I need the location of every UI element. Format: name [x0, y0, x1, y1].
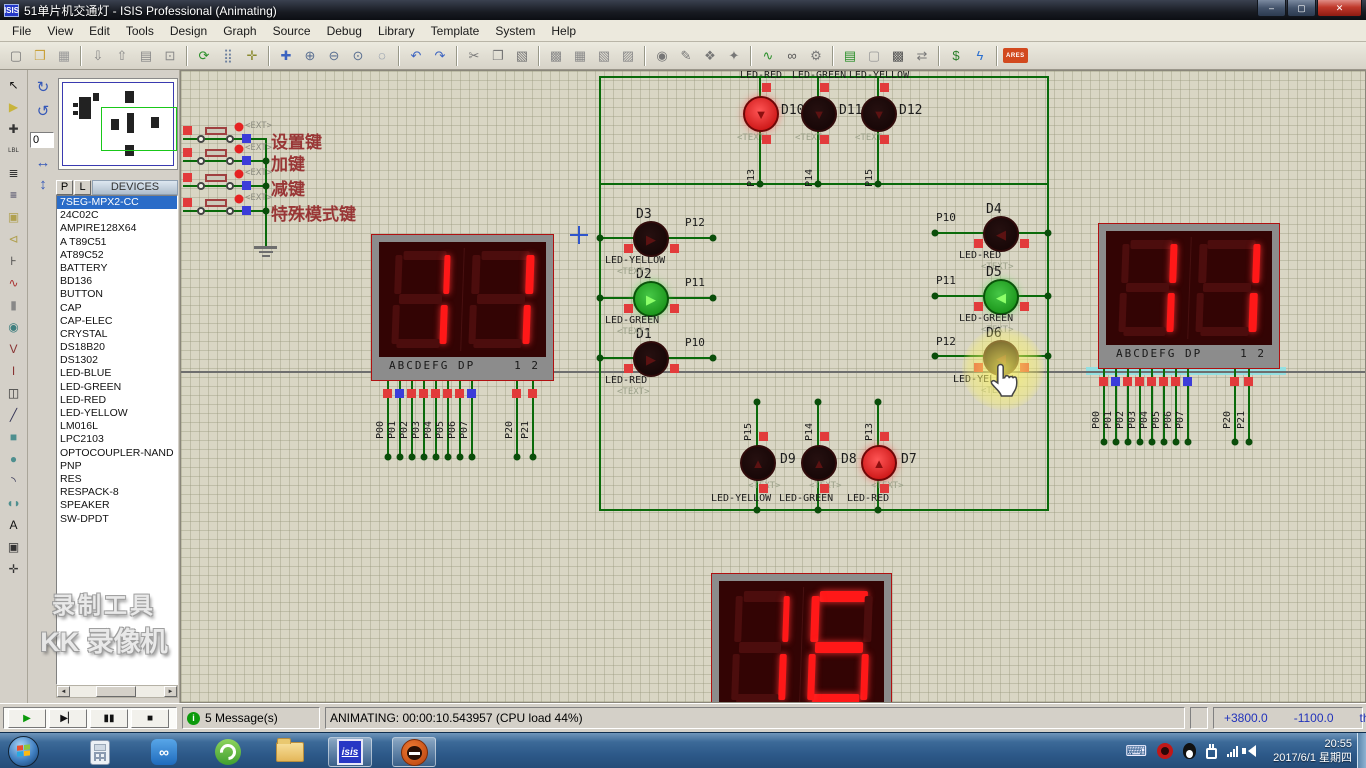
led-D7[interactable]: ▲	[861, 445, 897, 481]
import-icon[interactable]: ⇩	[87, 45, 109, 66]
app-icon: ISIS	[4, 4, 19, 17]
minimize-button[interactable]: –	[1257, 0, 1286, 17]
property-assign-icon[interactable]: ⚙	[805, 45, 827, 66]
2d-marker-icon[interactable]: ✛	[2, 558, 26, 580]
logic-state-square	[974, 239, 983, 248]
text-placeholder: <TEXT>	[617, 327, 650, 337]
logic-state-square	[431, 389, 440, 398]
menu-template[interactable]: Template	[423, 21, 488, 41]
mark-area-icon[interactable]: ⊡	[159, 45, 181, 66]
goto-sheet-icon[interactable]: ⇄	[911, 45, 933, 66]
net-label: P06	[447, 405, 458, 439]
toolbar-separator	[938, 46, 940, 66]
taskbar-isis[interactable]: isis	[328, 737, 372, 767]
wire-end-dot	[433, 454, 440, 461]
button-terminal	[226, 135, 234, 143]
wire-end-dot	[385, 454, 392, 461]
led-D9[interactable]: ▲	[740, 445, 776, 481]
start-button[interactable]	[8, 736, 39, 767]
device-item-sw-dpdt[interactable]: SW-DPDT	[57, 513, 177, 526]
logic-state-square	[820, 135, 829, 144]
component-ref: D11	[839, 103, 862, 118]
led-D2[interactable]: ▶	[633, 281, 669, 317]
menu-tools[interactable]: Tools	[118, 21, 162, 41]
led-D12[interactable]: ▼	[861, 96, 897, 132]
component-type: LED-GREEN	[779, 493, 833, 504]
component-type: LED-RED	[847, 493, 889, 504]
logic-state-square	[820, 83, 829, 92]
wire	[183, 185, 266, 187]
keyboard-icon[interactable]: ⌨	[1125, 742, 1147, 760]
hand-cursor-icon	[989, 363, 1021, 399]
2d-line-icon[interactable]: ╱	[2, 404, 26, 426]
junction-dot	[815, 399, 822, 406]
wire	[183, 210, 266, 212]
led-D1[interactable]: ▶	[633, 341, 669, 377]
taskbar-clock[interactable]: 20:55 2017/6/1 星期四	[1273, 737, 1352, 765]
power-plug-icon[interactable]	[1206, 748, 1217, 759]
led-D5[interactable]: ◀	[983, 279, 1019, 315]
make-device-icon[interactable]: ✎	[675, 45, 697, 66]
wire-end-dot	[397, 454, 404, 461]
spacer-panel	[1190, 707, 1208, 729]
net-label: P14	[804, 407, 815, 441]
device-item-respack-8[interactable]: RESPACK-8	[57, 486, 177, 499]
title-bar[interactable]: ISIS 51单片机交通灯 - ISIS Professional (Anima…	[0, 0, 1366, 20]
rotate-ccw-button[interactable]: ↺	[30, 102, 56, 120]
logic-state-square	[1183, 377, 1192, 386]
toolbar-separator	[996, 46, 998, 66]
logic-state-square	[624, 304, 633, 313]
schematic-canvas[interactable]: <EXT> 设置键 <EXT> 加键 <EXT> 减键 <EXT> 特殊模式键	[180, 70, 1366, 703]
electrical-check-icon[interactable]: ϟ	[969, 45, 991, 66]
button-terminal	[197, 207, 205, 215]
junction-dot	[932, 230, 939, 237]
menu-help[interactable]: Help	[543, 21, 584, 41]
zoom-in-icon[interactable]: ⊕	[299, 45, 321, 66]
net-label: P07	[1175, 395, 1186, 429]
show-desktop-button[interactable]	[1357, 733, 1366, 768]
device-item-optocoupler-nand[interactable]: OPTOCOUPLER-NAND	[57, 447, 177, 460]
device-item-lm016l[interactable]: LM016L	[57, 420, 177, 433]
device-item-cap[interactable]: CAP	[57, 302, 177, 315]
led-D10[interactable]: ▼	[743, 96, 779, 132]
component-type: LED-YELLOW	[833, 70, 925, 81]
mode-toolbar: ↖▶✚LBL≣≡▣⊲⊦∿▮◉VI◫╱■●◝◖◗A▣✛	[0, 70, 28, 703]
kk-recorder-icon	[401, 739, 428, 766]
logic-state-square	[455, 389, 464, 398]
junction-dot	[932, 353, 939, 360]
component-ref: D7	[901, 452, 917, 467]
2d-circle-icon[interactable]: ●	[2, 448, 26, 470]
clock-date: 2017/6/1 星期四	[1273, 751, 1352, 765]
net-label: P03	[411, 405, 422, 439]
menu-debug[interactable]: Debug	[319, 21, 370, 41]
wire	[599, 76, 601, 511]
pause-button[interactable]: ▮▮	[90, 709, 128, 728]
bus-icon[interactable]: ≡	[2, 184, 26, 206]
taskbar-browser[interactable]	[206, 737, 250, 767]
isis-window: ISIS 51单片机交通灯 - ISIS Professional (Anima…	[0, 0, 1366, 768]
menu-system[interactable]: System	[487, 21, 543, 41]
device-item-ds1302[interactable]: DS1302	[57, 354, 177, 367]
junction-dot-icon[interactable]: ✚	[2, 118, 26, 140]
device-item-speaker[interactable]: SPEAKER	[57, 499, 177, 512]
animating-text: ANIMATING: 00:00:10.543957 (CPU load 44%…	[330, 711, 583, 725]
wire-label-icon[interactable]: LBL	[2, 140, 26, 162]
coord-units: th	[1360, 711, 1366, 725]
logic-state-square	[183, 173, 192, 182]
redraw-icon[interactable]: ⟳	[193, 45, 215, 66]
logic-state-square	[383, 389, 392, 398]
net-label: P00	[1091, 395, 1102, 429]
kk-tray-icon[interactable]	[1157, 743, 1173, 759]
library-button[interactable]: L	[74, 180, 91, 195]
seven-seg-display-bottom[interactable]	[711, 573, 892, 703]
cut-icon[interactable]: ✂	[463, 45, 485, 66]
net-label: P02	[1115, 395, 1126, 429]
status-bar: ▶▶▏▮▮■ i 5 Message(s) ANIMATING: 00:00:1…	[0, 703, 1366, 732]
seg-pin-labels: ABCDEFG DP1 2	[379, 357, 546, 373]
ext-label: <EXT>	[245, 193, 272, 203]
toolbar-separator	[186, 46, 188, 66]
logic-state-square	[183, 198, 192, 207]
close-button[interactable]: ✕	[1317, 0, 1362, 17]
generator-mode-icon[interactable]: ◉	[2, 316, 26, 338]
search-tag-icon[interactable]: ∞	[781, 45, 803, 66]
tape-recorder-icon[interactable]: ▮	[2, 294, 26, 316]
device-item-lpc2103[interactable]: LPC2103	[57, 433, 177, 446]
seg-screen	[719, 581, 884, 703]
junction-dot	[815, 507, 822, 514]
taskbar-calculator[interactable]	[78, 737, 122, 767]
device-item-battery[interactable]: BATTERY	[57, 262, 177, 275]
device-item-at89c52[interactable]: AT89C52	[57, 249, 177, 262]
text-script-icon[interactable]: ≣	[2, 162, 26, 184]
device-item-7seg-mpx2-cc[interactable]: 7SEG-MPX2-CC	[57, 196, 177, 209]
netlist-to-ares-icon[interactable]: ARES	[1003, 48, 1028, 63]
junction-dot	[875, 507, 882, 514]
scroll-thumb[interactable]	[96, 686, 136, 697]
net-label: P07	[459, 405, 470, 439]
packaging-icon[interactable]: ❖	[699, 45, 721, 66]
logic-state-square	[762, 135, 771, 144]
logic-state-square	[670, 244, 679, 253]
net-label: P15	[743, 407, 754, 441]
led-D8[interactable]: ▲	[801, 445, 837, 481]
taskbar-kk-recorder[interactable]	[392, 737, 436, 767]
2d-box-icon[interactable]: ■	[2, 426, 26, 448]
diode-symbol-icon: ▲	[813, 457, 826, 470]
logic-state-square	[624, 364, 633, 373]
calculator-icon	[90, 740, 110, 765]
net-label: P11	[685, 276, 705, 289]
wire-end-dot	[1149, 439, 1156, 446]
junction-dot	[754, 507, 761, 514]
button-terminal	[197, 135, 205, 143]
menu-file[interactable]: File	[4, 21, 39, 41]
logic-state-square	[242, 181, 251, 190]
wire-end-dot	[1101, 439, 1108, 446]
stop-button[interactable]: ■	[131, 709, 169, 728]
component-ref: D3	[636, 207, 652, 222]
toolbar-separator	[80, 46, 82, 66]
diode-symbol-icon: ▶	[646, 233, 656, 246]
terminal-icon[interactable]: ⊲	[2, 228, 26, 250]
2d-text-icon[interactable]: A	[2, 514, 26, 536]
toolbar-separator	[398, 46, 400, 66]
copy-icon[interactable]: ❐	[487, 45, 509, 66]
junction-dot	[875, 181, 882, 188]
graph-mode-icon[interactable]: ∿	[2, 272, 26, 294]
wire-end-dot	[1232, 439, 1239, 446]
net-label: P05	[1151, 395, 1162, 429]
wire-autorouter-icon[interactable]: ∿	[757, 45, 779, 66]
junction-dot	[710, 235, 717, 242]
device-item-ds18b20[interactable]: DS18B20	[57, 341, 177, 354]
key-label-plus: 加键	[271, 150, 305, 175]
device-item-led-green[interactable]: LED-GREEN	[57, 381, 177, 394]
net-label: P02	[399, 405, 410, 439]
pointer-crosshair-icon	[570, 226, 588, 244]
logic-state-square	[759, 484, 768, 493]
taskbar-explorer[interactable]	[268, 737, 312, 767]
grid-icon[interactable]: ⣿	[217, 45, 239, 66]
seven-seg-digit	[460, 248, 540, 351]
device-item-led-blue[interactable]: LED-BLUE	[57, 367, 177, 380]
menu-graph[interactable]: Graph	[215, 21, 264, 41]
component-type: LED-RED	[959, 250, 1001, 261]
block-delete-icon[interactable]: ▨	[617, 45, 639, 66]
text-placeholder: <TEXT>	[617, 387, 650, 397]
logic-state-square	[1230, 377, 1239, 386]
logic-state-square	[242, 134, 251, 143]
junction-dot	[1045, 353, 1052, 360]
simulation-controls: ▶▶▏▮▮■	[3, 707, 177, 729]
2d-symbol-icon[interactable]: ▣	[2, 536, 26, 558]
wire-end-dot	[514, 454, 521, 461]
coordinate-display: +3800.0 -1100.0 th	[1213, 707, 1363, 729]
text-placeholder: <TEXT>	[617, 267, 650, 277]
mirror-vertical-button[interactable]: ↕	[30, 176, 56, 193]
logic-state-square	[762, 83, 771, 92]
new-sheet-icon[interactable]: ▢	[863, 45, 885, 66]
logic-state-square	[1159, 377, 1168, 386]
mirror-horizontal-button[interactable]: ↔	[30, 154, 56, 171]
logic-state-square	[407, 389, 416, 398]
push-button[interactable]	[205, 199, 227, 207]
overview-window[interactable]	[58, 78, 178, 170]
bill-of-materials-icon[interactable]: $	[945, 45, 967, 66]
led-D3[interactable]: ▶	[633, 221, 669, 257]
wire-end-dot	[421, 454, 428, 461]
zoom-area-icon[interactable]: ◌	[371, 45, 393, 66]
seven-seg-digit	[1112, 237, 1182, 339]
device-item-led-red[interactable]: LED-RED	[57, 394, 177, 407]
volume-icon[interactable]	[1248, 745, 1256, 757]
device-item-cap-elec[interactable]: CAP-ELEC	[57, 315, 177, 328]
device-item-a-t89c51[interactable]: A T89C51	[57, 236, 177, 249]
device-item-button[interactable]: BUTTON	[57, 288, 177, 301]
scroll-right-button[interactable]: ►	[164, 686, 177, 697]
wire	[599, 509, 1049, 511]
logic-state-square	[467, 389, 476, 398]
logic-state-square	[1171, 377, 1180, 386]
key-label-minus: 减键	[271, 175, 305, 200]
pick-device-icon[interactable]: ◉	[651, 45, 673, 66]
led-D11[interactable]: ▼	[801, 96, 837, 132]
led-D4[interactable]: ◀	[983, 216, 1019, 252]
logic-state-square	[443, 389, 452, 398]
wire-end-dot	[1185, 439, 1192, 446]
isis-icon: isis	[337, 739, 363, 765]
logic-state-square	[1020, 302, 1029, 311]
voltage-probe-icon[interactable]: V	[2, 338, 26, 360]
redo-icon[interactable]: ↷	[429, 45, 451, 66]
menu-view[interactable]: View	[39, 21, 81, 41]
component-mode-icon[interactable]: ▶	[2, 96, 26, 118]
net-label: P12	[936, 335, 956, 348]
junction-dot	[710, 295, 717, 302]
net-label: P11	[936, 274, 956, 287]
junction-dot	[597, 295, 604, 302]
design-explorer-icon[interactable]: ▤	[839, 45, 861, 66]
net-label: P01	[1103, 395, 1114, 429]
junction-dot	[1045, 293, 1052, 300]
button-terminal	[197, 157, 205, 165]
subcircuit-icon[interactable]: ▣	[2, 206, 26, 228]
rotate-angle-input[interactable]	[30, 132, 54, 148]
menu-design[interactable]: Design	[162, 21, 215, 41]
block-move-icon[interactable]: ▦	[569, 45, 591, 66]
menu-bar: FileViewEditToolsDesignGraphSourceDebugL…	[0, 20, 1366, 42]
menu-edit[interactable]: Edit	[81, 21, 118, 41]
seven-seg-display-left[interactable]: ABCDEFG DP1 2	[371, 234, 554, 381]
origin-icon[interactable]: ✛	[241, 45, 263, 66]
zoom-all-icon[interactable]: ⊙	[347, 45, 369, 66]
net-label: P20	[504, 405, 515, 439]
menu-source[interactable]: Source	[265, 21, 319, 41]
instrument-icon[interactable]: ◫	[2, 382, 26, 404]
ext-label: <EXT>	[245, 121, 272, 131]
seven-seg-display-right[interactable]: ABCDEFG DP1 2	[1098, 223, 1280, 369]
ext-label: <EXT>	[245, 143, 272, 153]
logic-state-square	[395, 389, 404, 398]
seg-pin-labels: ABCDEFG DP1 2	[1106, 345, 1272, 361]
pan-icon[interactable]: ✚	[275, 45, 297, 66]
component-ref: D9	[780, 452, 796, 467]
device-item-24c02c[interactable]: 24C02C	[57, 209, 177, 222]
save-file-icon[interactable]: ▦	[53, 45, 75, 66]
print-icon[interactable]: ▤	[135, 45, 157, 66]
2d-arc-icon[interactable]: ◝	[2, 470, 26, 492]
device-pin-icon[interactable]: ⊦	[2, 250, 26, 272]
undo-icon[interactable]: ↶	[405, 45, 427, 66]
message-panel[interactable]: i 5 Message(s)	[182, 707, 320, 729]
wire-end-dot	[1137, 439, 1144, 446]
component-ref: D5	[986, 265, 1002, 280]
clock-time: 20:55	[1273, 737, 1352, 751]
object-selector-panel: ↻ ↺ ↔ ↕ P	[28, 70, 180, 703]
overview-viewport[interactable]	[101, 107, 177, 151]
wire	[599, 183, 1049, 185]
junction-dot	[815, 181, 822, 188]
toolbar-separator	[538, 46, 540, 66]
device-item-pnp[interactable]: PNP	[57, 460, 177, 473]
toolbar-separator	[644, 46, 646, 66]
paste-icon[interactable]: ▧	[511, 45, 533, 66]
logic-state-square	[820, 484, 829, 493]
current-probe-icon[interactable]: I	[2, 360, 26, 382]
diode-symbol-icon: ▶	[646, 293, 656, 306]
device-item-res[interactable]: RES	[57, 473, 177, 486]
menu-library[interactable]: Library	[370, 21, 423, 41]
logic-state-square	[1135, 377, 1144, 386]
net-label: P20	[1222, 395, 1233, 429]
system-tray: ⌨	[1125, 733, 1256, 768]
rotate-cw-button[interactable]: ↻	[30, 78, 56, 96]
device-item-bd136[interactable]: BD136	[57, 275, 177, 288]
logic-state-square	[1123, 377, 1132, 386]
remove-sheet-icon[interactable]: ▩	[887, 45, 909, 66]
net-label: P01	[387, 405, 398, 439]
logic-state-square	[183, 126, 192, 135]
pick-devices-button[interactable]: P	[56, 180, 73, 195]
selection-mode-icon[interactable]: ↖	[2, 74, 26, 96]
toolbar-separator	[268, 46, 270, 66]
qq-icon[interactable]	[1183, 743, 1196, 759]
logic-state-square	[880, 83, 889, 92]
junction-dot	[597, 235, 604, 242]
wire	[183, 138, 266, 140]
component-type: LED-GREEN	[959, 313, 1013, 324]
net-label: P00	[375, 405, 386, 439]
scroll-left-button[interactable]: ◄	[57, 686, 70, 697]
device-item-crystal[interactable]: CRYSTAL	[57, 328, 177, 341]
device-item-ampire128x64[interactable]: AMPIRE128X64	[57, 222, 177, 235]
logic-state-square	[1147, 377, 1156, 386]
logic-state-square	[880, 432, 889, 441]
logic-state-square	[670, 304, 679, 313]
push-button[interactable]	[205, 127, 227, 135]
decompose-icon[interactable]: ✦	[723, 45, 745, 66]
toolbar-separator	[750, 46, 752, 66]
wire-end-dot	[409, 454, 416, 461]
export-icon[interactable]: ⇧	[111, 45, 133, 66]
net-label: P10	[685, 336, 705, 349]
zoom-out-icon[interactable]: ⊖	[323, 45, 345, 66]
step-button[interactable]: ▶▏	[49, 709, 87, 728]
play-button[interactable]: ▶	[8, 709, 46, 728]
device-item-led-yellow[interactable]: LED-YELLOW	[57, 407, 177, 420]
push-button[interactable]	[205, 174, 227, 182]
block-rotate-icon[interactable]: ▧	[593, 45, 615, 66]
logic-state-square	[820, 432, 829, 441]
device-list-scrollbar[interactable]: ◄ ►	[56, 685, 178, 698]
new-file-icon[interactable]: ▢	[5, 45, 27, 66]
maximize-button[interactable]: ▢	[1287, 0, 1316, 17]
2d-path-icon[interactable]: ◖◗	[2, 492, 26, 514]
component-ref: D8	[841, 452, 857, 467]
taskbar-netdisk[interactable]: ∞	[142, 737, 186, 767]
wire	[183, 160, 266, 162]
seven-seg-digit	[385, 248, 456, 351]
network-signal-icon[interactable]	[1227, 746, 1238, 757]
junction-dot	[754, 399, 761, 406]
open-file-icon[interactable]: ❒	[29, 45, 51, 66]
block-copy-icon[interactable]: ▩	[545, 45, 567, 66]
push-button[interactable]	[205, 149, 227, 157]
